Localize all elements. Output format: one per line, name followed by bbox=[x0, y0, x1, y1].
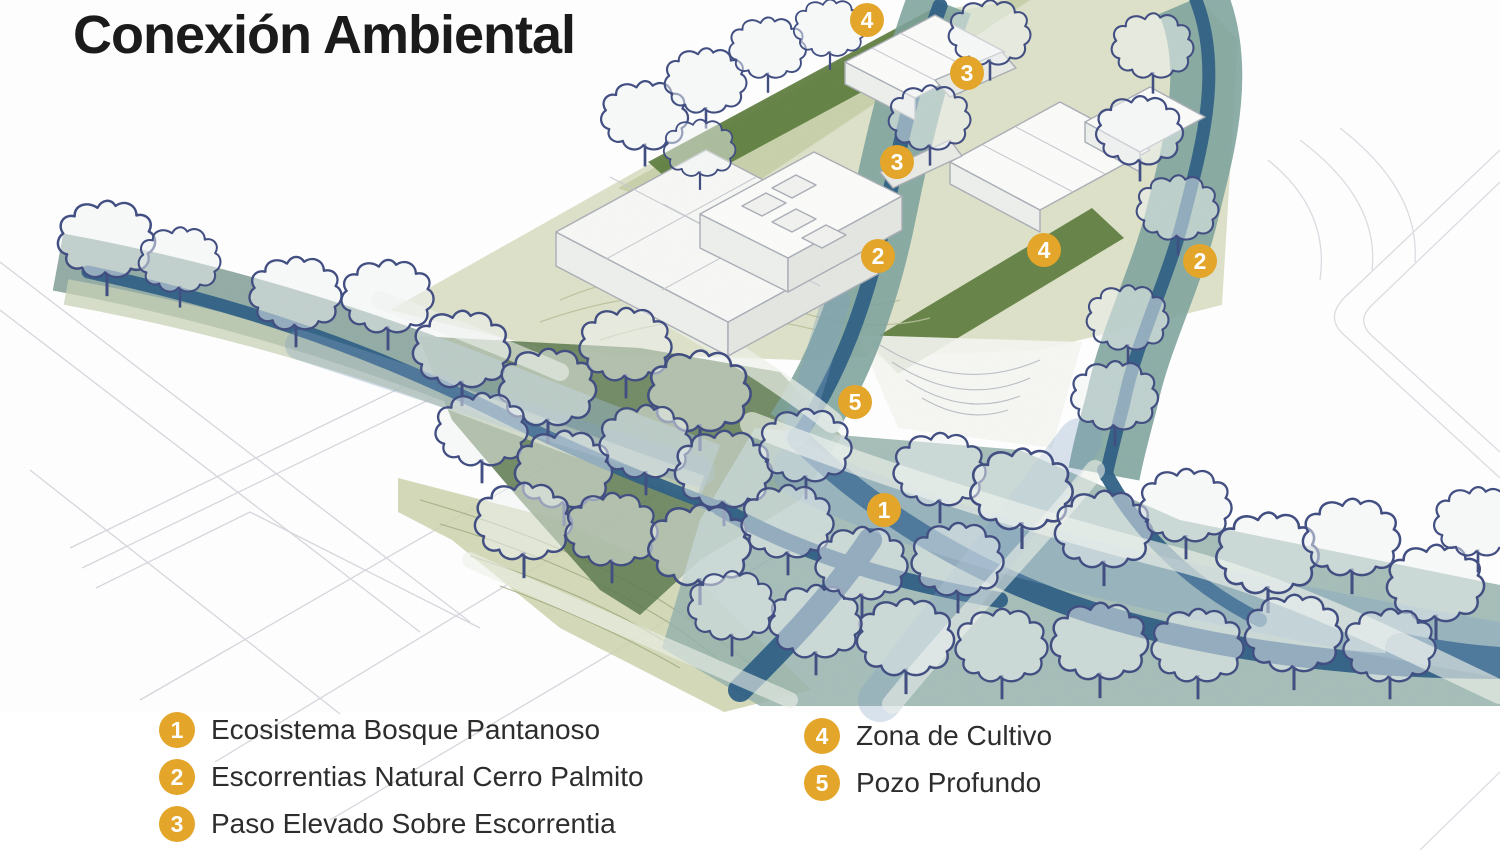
grain-texture bbox=[0, 0, 1500, 712]
map-marker-2: 2 bbox=[861, 239, 895, 273]
legend-label: Zona de Cultivo bbox=[856, 720, 1052, 752]
legend-number-badge: 3 bbox=[159, 806, 195, 842]
legend-label: Paso Elevado Sobre Escorrentia bbox=[211, 808, 616, 840]
legend-item-3: 3Paso Elevado Sobre Escorrentia bbox=[159, 806, 644, 842]
svg-text:3: 3 bbox=[961, 60, 974, 86]
legend-number-badge: 4 bbox=[804, 718, 840, 754]
legend-column-2: 4Zona de Cultivo5Pozo Profundo bbox=[804, 718, 1052, 801]
map-marker-4: 4 bbox=[850, 3, 884, 37]
svg-text:1: 1 bbox=[878, 497, 891, 523]
page-title: Conexión Ambiental bbox=[73, 4, 575, 66]
map-marker-3: 3 bbox=[950, 56, 984, 90]
legend-number-badge: 5 bbox=[804, 765, 840, 801]
svg-text:4: 4 bbox=[1038, 237, 1051, 263]
svg-text:2: 2 bbox=[1194, 248, 1207, 274]
legend-label: Escorrentias Natural Cerro Palmito bbox=[211, 761, 644, 793]
legend-label: Pozo Profundo bbox=[856, 767, 1041, 799]
map-marker-5: 5 bbox=[838, 385, 872, 419]
legend-item-5: 5Pozo Profundo bbox=[804, 765, 1052, 801]
legend-item-4: 4Zona de Cultivo bbox=[804, 718, 1052, 754]
map-marker-3: 3 bbox=[880, 145, 914, 179]
map-marker-1: 1 bbox=[867, 493, 901, 527]
legend-item-1: 1Ecosistema Bosque Pantanoso bbox=[159, 712, 644, 748]
legend-column-1: 1Ecosistema Bosque Pantanoso2Escorrentia… bbox=[159, 712, 644, 842]
svg-text:2: 2 bbox=[872, 243, 885, 269]
map-marker-4: 4 bbox=[1027, 233, 1061, 267]
svg-text:3: 3 bbox=[891, 149, 904, 175]
environmental-connection-diagram: 43324251 Conexión Ambiental 1Ecosistema … bbox=[0, 0, 1500, 850]
legend-number-badge: 1 bbox=[159, 712, 195, 748]
legend-item-2: 2Escorrentias Natural Cerro Palmito bbox=[159, 759, 644, 795]
legend-number-badge: 2 bbox=[159, 759, 195, 795]
svg-text:5: 5 bbox=[849, 389, 862, 415]
legend-label: Ecosistema Bosque Pantanoso bbox=[211, 714, 600, 746]
svg-text:4: 4 bbox=[861, 7, 874, 33]
map-marker-2: 2 bbox=[1183, 244, 1217, 278]
